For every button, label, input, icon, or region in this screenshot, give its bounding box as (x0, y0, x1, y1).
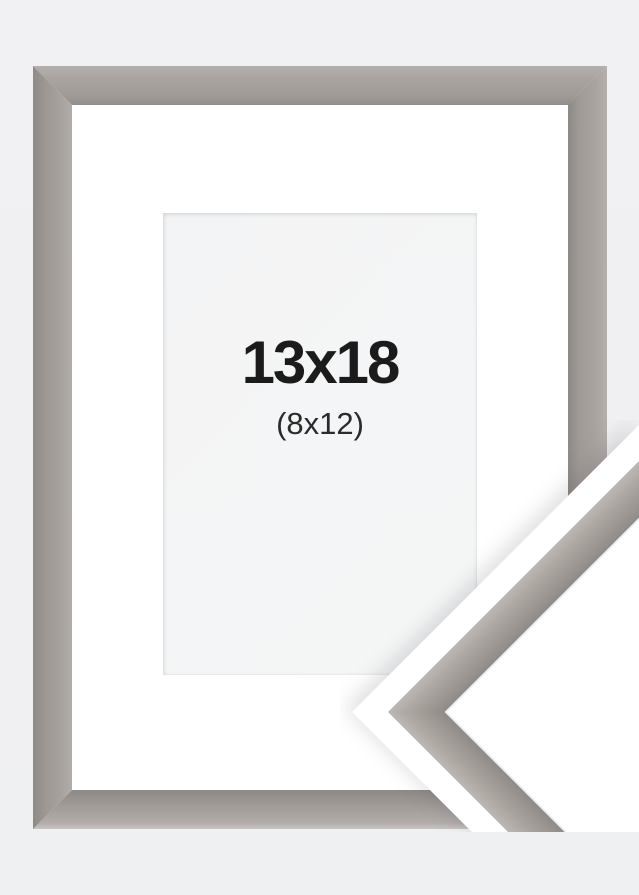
mat-opening: 13x18 (8x12) (163, 213, 477, 675)
product-image: 13x18 (8x12) (0, 0, 639, 895)
frame-moulding-left (33, 66, 73, 829)
size-label: 13x18 (242, 333, 399, 393)
sample-arm-lower (388, 684, 565, 861)
frame-moulding-top (33, 66, 607, 106)
size-sublabel: (8x12) (276, 406, 364, 442)
frame-moulding-right (567, 66, 607, 829)
picture-frame: 13x18 (8x12) (33, 66, 607, 829)
frame-moulding-bottom (33, 789, 607, 829)
